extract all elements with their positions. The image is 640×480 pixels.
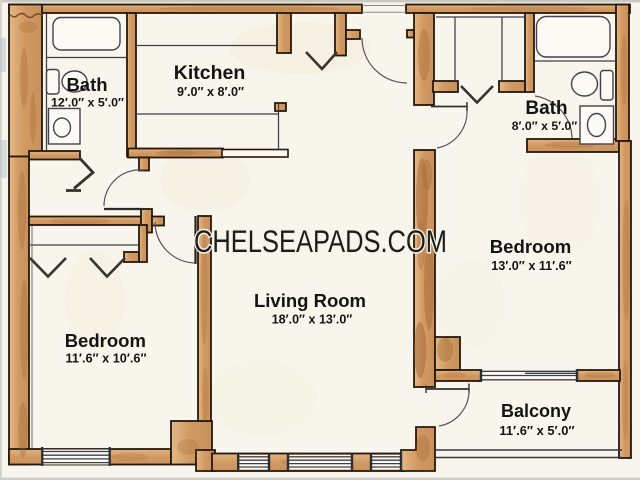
svg-text:Bath: Bath xyxy=(525,98,567,119)
svg-text:CHELSEAPADS.COM: CHELSEAPADS.COM xyxy=(194,223,447,259)
svg-text:Kitchen: Kitchen xyxy=(174,62,246,84)
svg-text:13′.0″ x 11′.6″: 13′.0″ x 11′.6″ xyxy=(491,259,571,273)
svg-text:Living Room: Living Room xyxy=(254,290,366,311)
svg-text:Balcony: Balcony xyxy=(501,401,571,421)
svg-text:Bedroom: Bedroom xyxy=(490,236,572,257)
svg-text:11′.6″ x 10′.6″: 11′.6″ x 10′.6″ xyxy=(65,352,146,366)
svg-text:18′.0″ x 13′.0″: 18′.0″ x 13′.0″ xyxy=(272,313,353,327)
svg-text:9′.0″ x 8′.0″: 9′.0″ x 8′.0″ xyxy=(177,85,244,99)
svg-text:12′.0″ x 5′.0″: 12′.0″ x 5′.0″ xyxy=(51,96,124,110)
svg-text:8′.0″ x 5′.0″: 8′.0″ x 5′.0″ xyxy=(512,119,578,133)
svg-text:11′.6″ x 5′.0″: 11′.6″ x 5′.0″ xyxy=(499,423,574,438)
svg-text:Bedroom: Bedroom xyxy=(65,330,146,351)
svg-text:Bath: Bath xyxy=(66,74,107,95)
